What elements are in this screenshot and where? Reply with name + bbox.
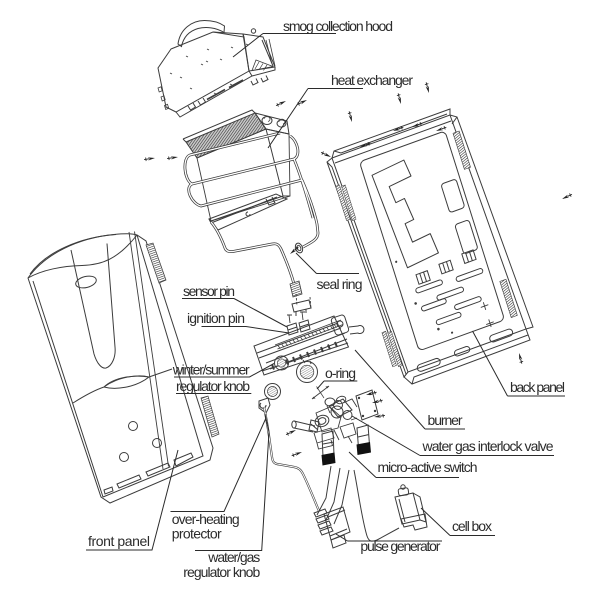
svg-text:pulse generator: pulse generator: [360, 538, 440, 554]
svg-text:regulator knob: regulator knob: [183, 564, 260, 580]
svg-text:protector: protector: [172, 526, 222, 542]
svg-text:water gas interlock valve: water gas interlock valve: [422, 438, 554, 454]
svg-text:smog collection hood: smog collection hood: [283, 18, 393, 34]
svg-text:water/gas: water/gas: [207, 549, 260, 565]
svg-text:back panel: back panel: [510, 379, 565, 395]
svg-text:cell box: cell box: [452, 518, 492, 534]
svg-text:burner: burner: [428, 412, 463, 428]
svg-text:front panel: front panel: [88, 533, 150, 549]
svg-text:seal ring: seal ring: [317, 276, 363, 292]
svg-text:heat exchanger: heat exchanger: [331, 72, 413, 88]
svg-text:o-ring: o-ring: [325, 365, 356, 381]
svg-text:winter/summer: winter/summer: [172, 362, 250, 378]
svg-text:sensor pin: sensor pin: [183, 283, 235, 299]
svg-text:regulator knob: regulator knob: [176, 378, 250, 394]
svg-text:micro-active switch: micro-active switch: [378, 459, 478, 475]
svg-text:ignition pin: ignition pin: [187, 310, 245, 326]
